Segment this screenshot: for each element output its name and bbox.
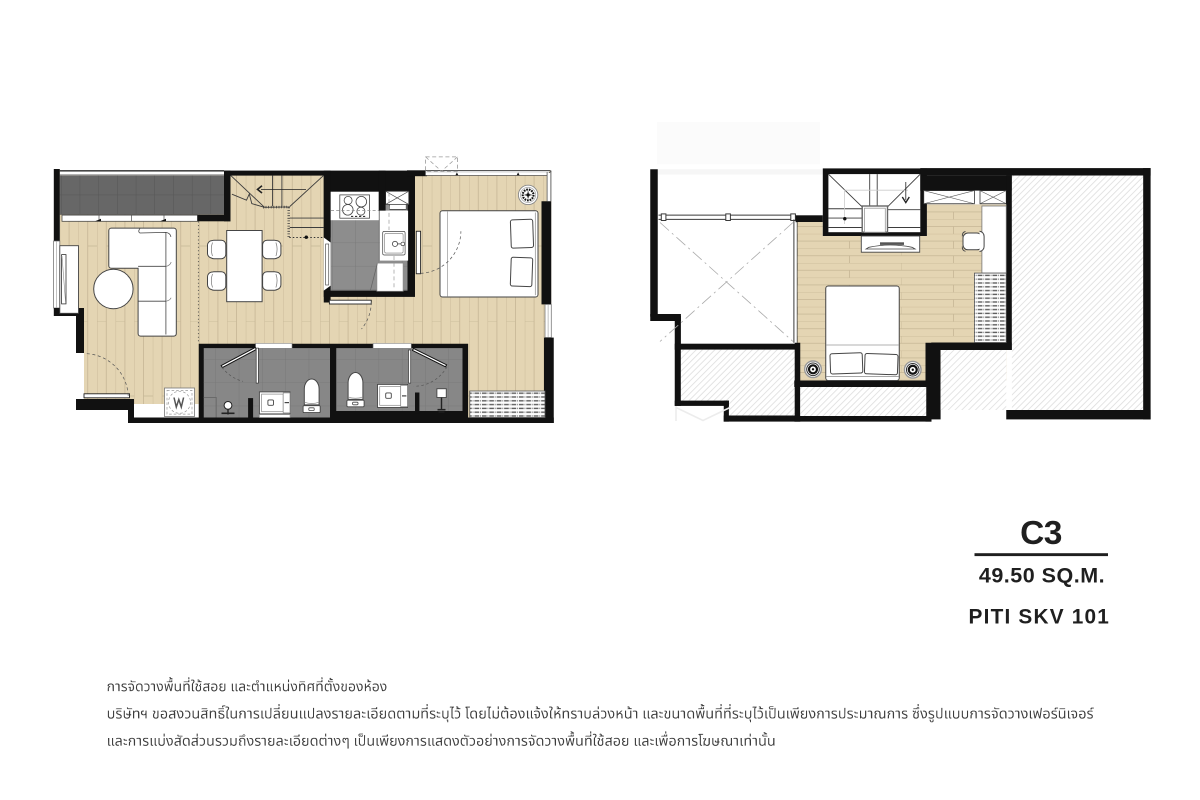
svg-text:49.50 SQ.M.: 49.50 SQ.M. bbox=[979, 564, 1105, 588]
svg-text:C3: C3 bbox=[1020, 515, 1062, 552]
svg-text:PITI SKV 101: PITI SKV 101 bbox=[969, 605, 1111, 628]
